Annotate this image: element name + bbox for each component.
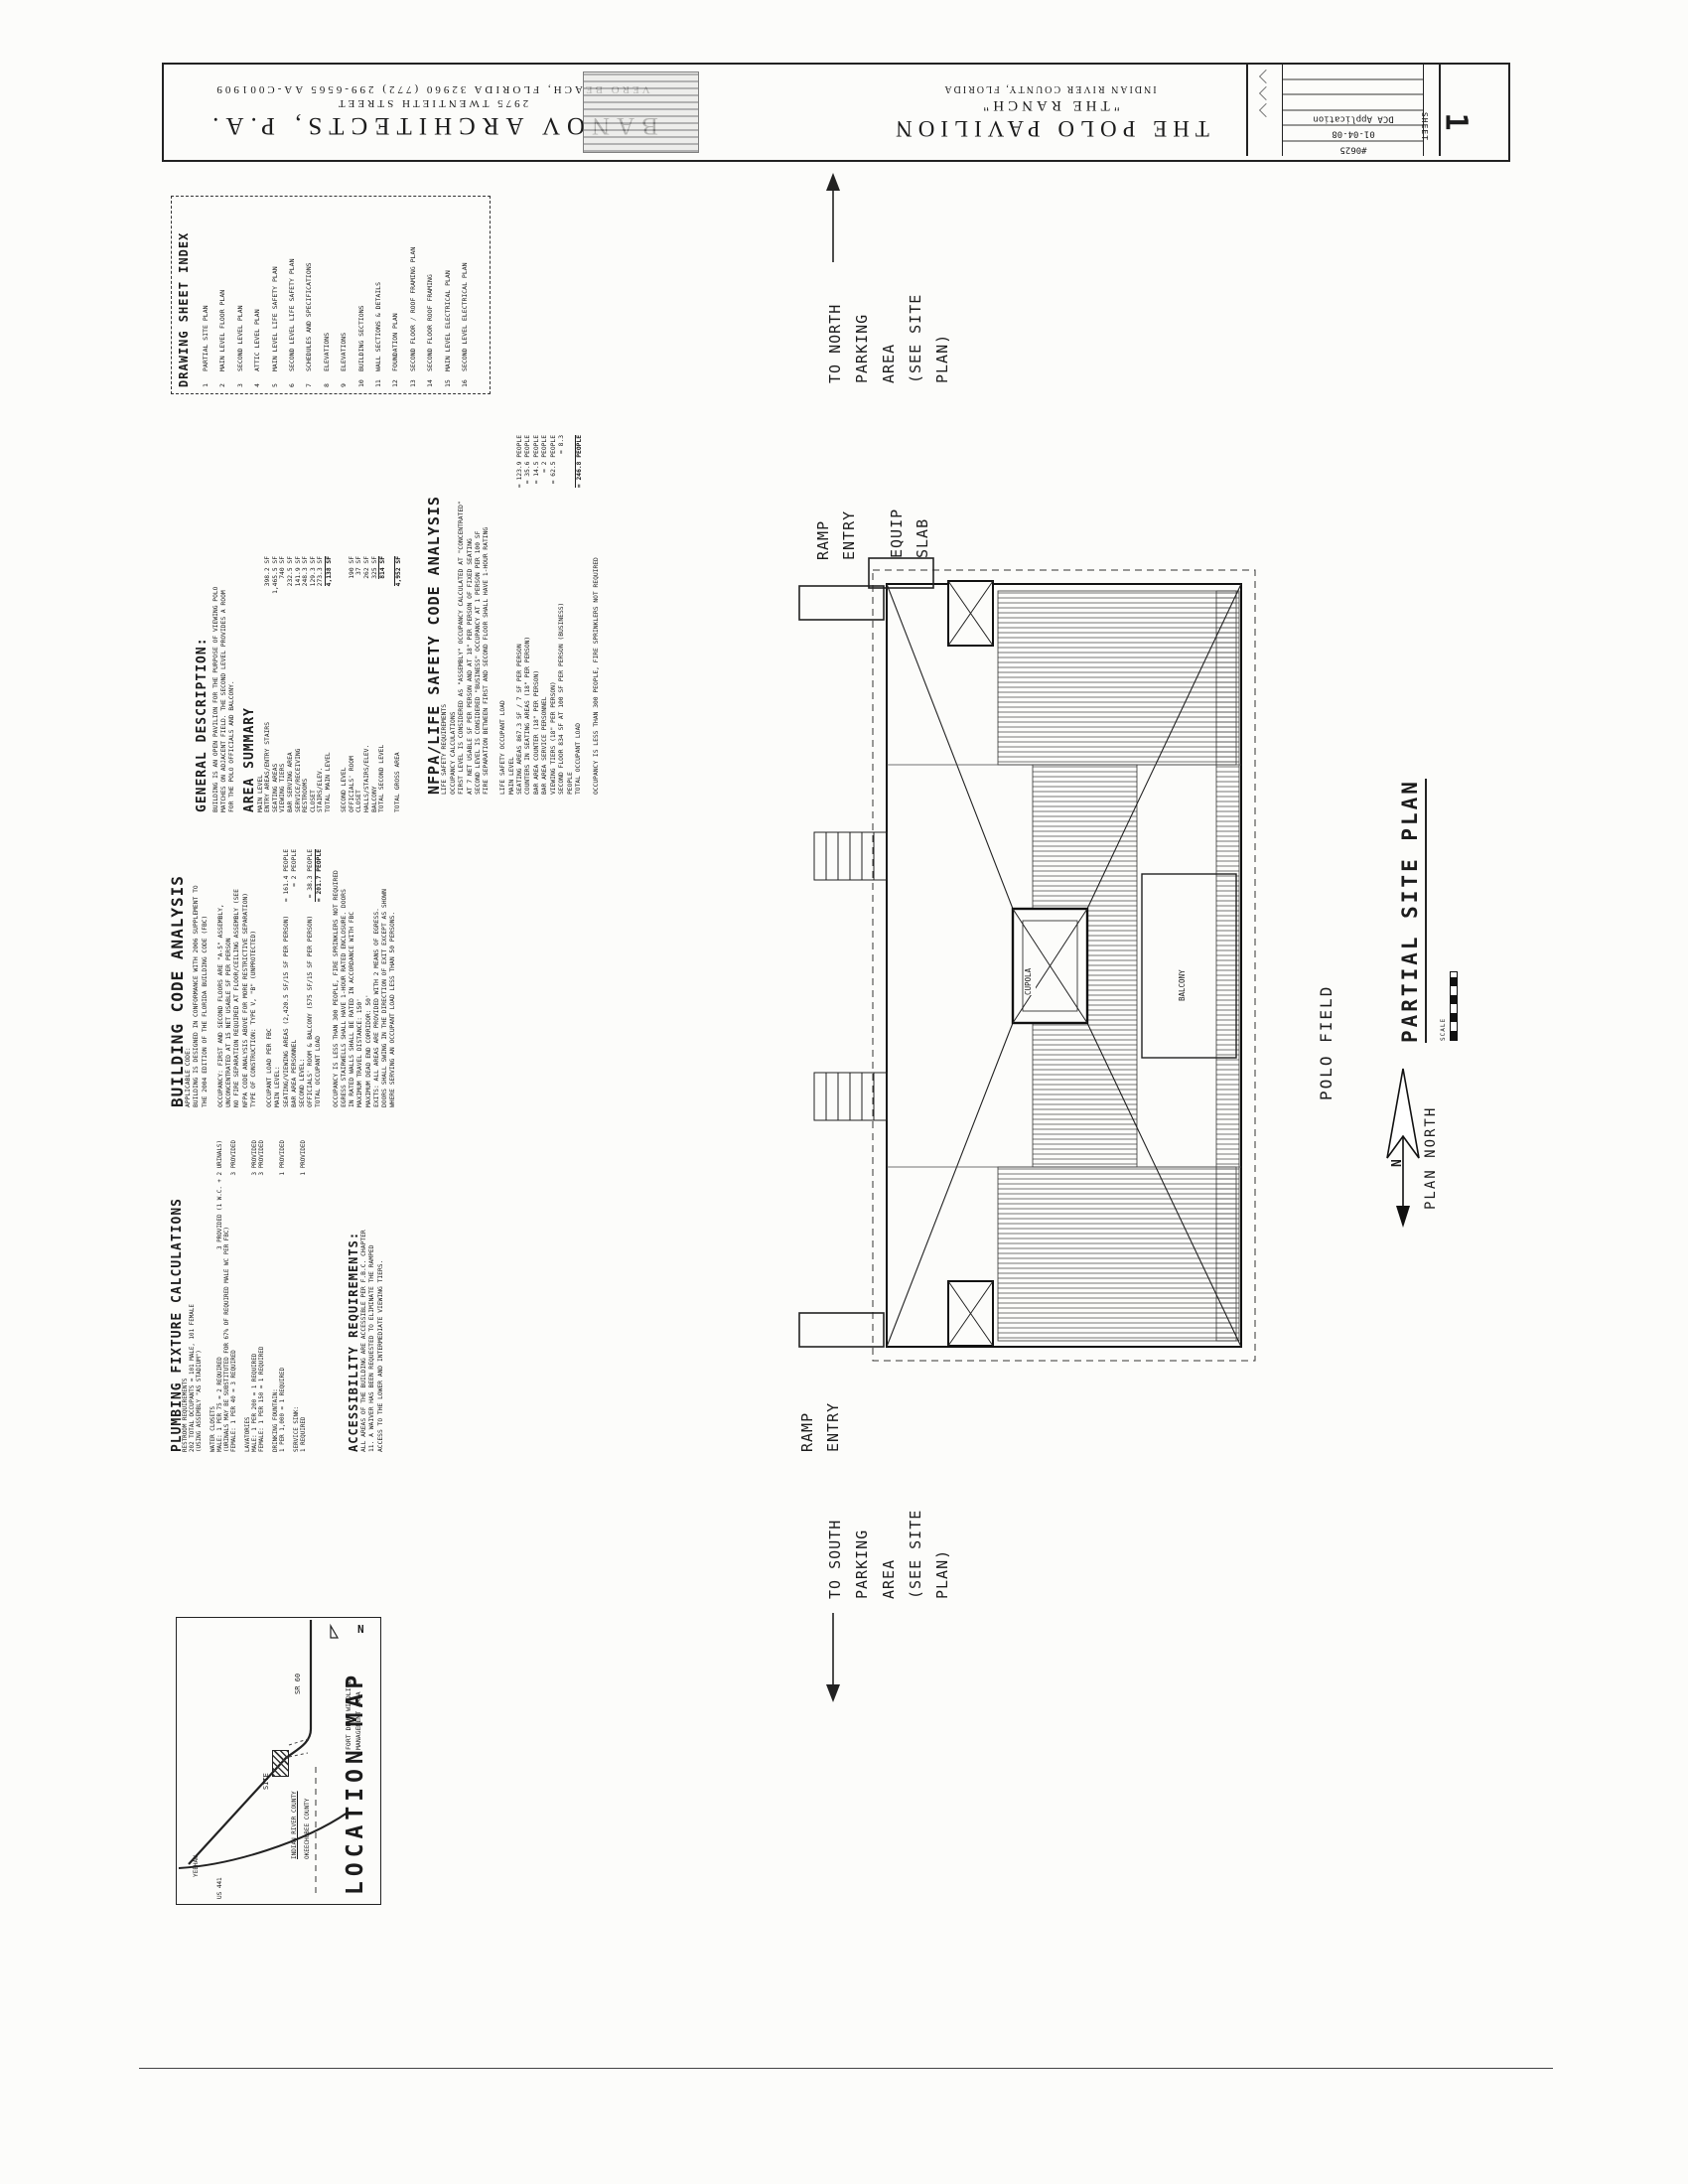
plumbing-title: PLUMBING FIXTURE CALCULATIONS <box>174 1140 181 1452</box>
plumbing-row: (USING ASSEMBLY "AS STADIUM") <box>197 1140 204 1452</box>
nfpa-load-row: COUNTERS IN SEATING AREAS (18" PER PERSO… <box>524 435 532 795</box>
area-row: HALLS/STAIRS/ELEV.262 SF <box>363 556 371 812</box>
building-code-line: EXITS: ALL AREAS ARE PROVIDED WITH 2 MEA… <box>373 849 381 1107</box>
general-description: GENERAL DESCRIPTION: BUILDING IS AN OPEN… <box>195 544 246 812</box>
second-level-label: SECOND LEVEL <box>341 556 349 812</box>
building-code-line: DOORS SHALL SWING IN THE DIRECTION OF EX… <box>381 849 389 1107</box>
area-row: OFFICIALS' ROOM190 SF <box>349 556 356 812</box>
accessibility-line: ALL AREAS OF THE BUILDING ARE ACCESSIBLE… <box>360 1140 368 1452</box>
sheet-index-entry: 8 ELEVATIONS <box>319 201 336 387</box>
map-label-us441: US 441 <box>216 1857 226 1899</box>
location-map-title: LOCATION MAP <box>343 1625 376 1895</box>
map-label-site: SITE <box>262 1760 272 1790</box>
area-row: BAR SERVING AREA232.5 SF <box>287 556 295 812</box>
area-summary-title: AREA SUMMARY <box>246 556 254 812</box>
building-code-line: MAXIMUM DEAD END CORRIDOR: 50' <box>365 849 373 1107</box>
ramp-entry-label-north: RAMPENTRY <box>810 491 866 560</box>
sheet-index-entry: 16 SECOND LEVEL ELECTRICAL PLAN <box>457 201 474 387</box>
plumbing-row: WATER CLOSETS <box>211 1140 217 1452</box>
plumbing-row: MALE: 1 PER 200 = 1 REQUIRED3 PROVIDED <box>252 1140 259 1452</box>
nfpa-load-row: SEATING AREAS 867.3 SF / 7 SF PER PERSON… <box>516 435 524 795</box>
main-level-label: MAIN LEVEL <box>257 556 265 812</box>
plumbing-row: (URINALS MAY BE SUBSTITUTED FOR 67% OF R… <box>224 1140 231 1452</box>
map-north-arrow-icon <box>331 1626 338 1638</box>
building-code-load-row: SECOND LEVEL: <box>299 849 307 1107</box>
sheet-index-entry: 9 ELEVATIONS <box>336 201 352 387</box>
building-code-line <box>325 849 333 1107</box>
accessibility-title: ACCESSIBILITY REQUIREMENTS: <box>350 1140 357 1452</box>
plumbing-row <box>287 1140 294 1452</box>
building-code-line: OCCUPANCY: FIRST AND SECOND FLOORS ARE "… <box>217 849 225 1107</box>
building-code-analysis: BUILDING CODE ANALYSIS APPLICABLE CODE:B… <box>174 849 417 1107</box>
sheet-index-list: 1 PARTIAL SITE PLAN 2 MAIN LEVEL FLOOR P… <box>198 201 475 387</box>
plumbing-calculations: PLUMBING FIXTURE CALCULATIONS RESTROOM R… <box>174 1140 300 1452</box>
building-code-load-row: SEATING/VIEWING AREAS (2,420.5 SF/15 SF … <box>283 849 291 1107</box>
nfpa-load-row: BAR AREA COUNTER (18" PER PERSON)= 14.5 … <box>533 435 541 795</box>
nfpa-note: OCCUPANCY IS LESS THAN 300 PEOPLE, FIRE … <box>593 435 601 795</box>
nfpa-line: OCCUPANCY CALCULATIONS <box>450 435 458 795</box>
sheet-number: 1 <box>1439 112 1474 130</box>
building-code-line: WHERE SERVING AN OCCUPANT LOAD LESS THAN… <box>389 849 397 1107</box>
plumbing-row: FEMALE: 1 PER 150 = 1 REQUIRED3 PROVIDED <box>259 1140 266 1452</box>
sheet-border-line <box>139 2068 1553 2069</box>
main-total-row: TOTAL MAIN LEVEL 4,138 SF <box>325 556 334 812</box>
building-code-total-row: TOTAL OCCUPANT LOAD = 201.7 PEOPLE <box>315 849 324 1107</box>
entry-stair-upper <box>814 832 887 880</box>
sheet-index-entry: 10 BUILDING SECTIONS <box>353 201 370 387</box>
gross-total-row: TOTAL GROSS AREA 4,952 SF <box>394 556 403 812</box>
revision-delta-icon <box>1259 103 1273 117</box>
building-code-line: EGRESS STAIRWELLS SHALL HAVE 1-HOUR RATE… <box>341 849 349 1107</box>
sheet-index: DRAWING SHEET INDEX 1 PARTIAL SITE PLAN … <box>177 201 485 387</box>
nfpa-total-row: TOTAL OCCUPANT LOAD = 246.8 PEOPLE <box>575 435 584 795</box>
sheet-index-entry: 12 FOUNDATION PLAN <box>387 201 404 387</box>
building-code-line: UNCONCENTRATED AT 15 NET USABLE SF PER P… <box>225 849 233 1107</box>
graphic-scale-bar <box>1450 971 1458 1041</box>
second-total-row: TOTAL SECOND LEVEL 814 SF <box>378 556 387 812</box>
partial-site-plan-title: PARTIAL SITE PLAN <box>1398 785 1434 1043</box>
sheet-index-entry: 6 SECOND LEVEL LIFE SAFETY PLAN <box>284 201 301 387</box>
accessibility-line: 11. A WAIVER HAS BEEN REQUESTED TO ELIMI… <box>368 1140 376 1452</box>
title-info-row <box>1283 65 1424 79</box>
sheet-index-entry: 2 MAIN LEVEL FLOOR PLAN <box>214 201 231 387</box>
plan-north-label: PLAN NORTH <box>1423 1078 1441 1210</box>
ramp-entry-label-south: RAMPENTRY <box>794 1379 852 1452</box>
polo-field-label: POLO FIELD <box>1317 979 1338 1100</box>
plumbing-row <box>238 1140 245 1452</box>
cupola-label: CUPOLA <box>1024 951 1036 995</box>
nfpa-line <box>492 435 499 795</box>
building-code-line: TYPE OF CONSTRUCTION: TYPE V, "B" (UNPRO… <box>250 849 258 1107</box>
sheet-index-entry: 14 SECOND FLOOR ROOF FRAMING <box>422 201 439 387</box>
title-info-row <box>1283 79 1424 95</box>
title-info-row: 01-04-08 <box>1283 125 1424 141</box>
building-code-line <box>210 849 217 1107</box>
area-row: STAIRS/ELEV.273.3 SF <box>317 556 325 812</box>
plumbing-row <box>266 1140 273 1452</box>
accessibility-requirements: ACCESSIBILITY REQUIREMENTS: ALL AREAS OF… <box>350 1140 415 1452</box>
revision-delta-icon <box>1259 86 1273 100</box>
shaft-upper <box>948 581 993 646</box>
ramp-south <box>799 1313 884 1347</box>
building-code-line: IN RATED WALLS SHALL BE RATED IN ACCORDA… <box>349 849 356 1107</box>
area-row: BALCONY325 SF <box>371 556 379 812</box>
area-row: SEATING AREAS1,465.5 SF <box>272 556 280 812</box>
nfpa-level-label: MAIN LEVEL <box>508 435 516 795</box>
sheet-index-entry: 1 PARTIAL SITE PLAN <box>198 201 214 387</box>
building-code-line: THE 2004 EDITION OF THE FLORIDA BUILDING… <box>202 849 210 1107</box>
building-code-line: OCCUPANCY IS LESS THAN 300 PEOPLE, FIRE … <box>333 849 341 1107</box>
title-info-table: DCA Application01-04-08#0625 <box>1282 65 1424 156</box>
area-row: CLOSET129.3 SF <box>310 556 318 812</box>
general-description-line: BUILDING IS AN OPEN PAVILION FOR THE PUR… <box>212 544 220 812</box>
building-code-load-row: MAIN LEVEL: <box>274 849 282 1107</box>
entry-stair-lower <box>814 1073 887 1120</box>
nfpa-load-title: LIFE SAFETY OCCUPANT LOAD <box>499 435 507 795</box>
area-row: ENTRY AREAS/ENTRY STAIRS398.2 SF <box>264 556 272 812</box>
map-label-county-bottom: OKEECHOBEE COUNTY <box>304 1778 315 1859</box>
sheet-index-entry: 11 WALL SECTIONS & DETAILS <box>370 201 387 387</box>
south-direction-arrow <box>820 1611 850 1704</box>
general-description-title: GENERAL DESCRIPTION: <box>195 544 210 812</box>
roof-hatch-upper <box>998 591 1236 765</box>
sheet-index-entry: 13 SECOND FLOOR / ROOF FRAMING PLAN <box>405 201 422 387</box>
sheet-index-entry: 3 SECOND LEVEL PLAN <box>232 201 249 387</box>
area-row: VIEWING TIERS740 SF <box>279 556 287 812</box>
area-row: RESTROOMS248.3 SF <box>302 556 310 812</box>
sheet-number-box: 1 <box>1439 65 1506 156</box>
sheet-index-entry: 15 MAIN LEVEL ELECTRICAL PLAN <box>440 201 457 387</box>
nfpa-load-row: PEOPLE <box>567 435 575 795</box>
area-row: SERVICE/RECEIVING141.9 SF <box>295 556 303 812</box>
roof-hatch-lower <box>998 1167 1236 1341</box>
project-section: THE POLO PAVILION "THE RANCH" INDIAN RIV… <box>856 69 1243 156</box>
sheet-label-cell: SHEET <box>1423 65 1440 156</box>
nfpa-load-row: BAR AREA SERVICE PERSONNEL= 2 PEOPLE <box>541 435 549 795</box>
scale-label: SCALE <box>1440 963 1447 1041</box>
building-code-line: NFPA CODE ANALYSIS ABOVE FOR MORE RESTRI… <box>242 849 250 1107</box>
building-code-title: BUILDING CODE ANALYSIS <box>174 849 182 1107</box>
building-code-load-row: OFFICIALS' ROOM & BALCONY (575 SF/15 SF … <box>307 849 315 1107</box>
revision-strip <box>1246 65 1284 156</box>
ramp-north <box>799 586 884 620</box>
building-code-line: MAXIMUM TRAVEL DISTANCE: 150' <box>356 849 364 1107</box>
nfpa-line: FIRE SEPARATION BETWEEN FIRST AND SECOND… <box>483 435 491 795</box>
nfpa-line: FIRST LEVEL IS CONSIDERED AS "ASSEMBLY" … <box>458 435 466 795</box>
nfpa-line: SECOND LEVEL IS CONSIDERED "BUSINESS" OC… <box>475 435 483 795</box>
general-description-line: FOR THE POLO OFFICIALS AND BALCONY. <box>228 544 236 812</box>
plumbing-row: 202 TOTAL OCCUPANTS = 101 MALE, 101 FEMA… <box>190 1140 197 1452</box>
map-label-yeehaw: YEEHAW <box>193 1835 203 1877</box>
map-road-turnpike <box>179 1813 348 1868</box>
north-direction-arrow <box>820 171 850 264</box>
to-south-parking-label: TO SOUTHPARKINGAREA(SEE SITEPLAN) <box>822 1460 961 1599</box>
building-code-line: NO FIRE SEPARATION REQUIRED AT FLOOR/CEI… <box>233 849 241 1107</box>
to-north-parking-label: TO NORTHPARKINGAREA(SEE SITEPLAN) <box>822 264 961 383</box>
nfpa-load-row: VIEWING TIERS (18" PER PERSON)= 62.5 PEO… <box>550 435 558 795</box>
revision-delta-icon <box>1259 70 1273 83</box>
area-summary: AREA SUMMARY MAIN LEVEL ENTRY AREAS/ENTR… <box>246 556 429 812</box>
plumbing-row: LAVATORIES <box>245 1140 252 1452</box>
building-code-load-row: OCCUPANT LOAD PER FBC <box>266 849 274 1107</box>
plumbing-row: MALE: 1 PER 75 = 2 REQUIRED3 PROVIDED (1… <box>217 1140 224 1452</box>
project-subtitle: "THE RANCH" <box>979 96 1120 113</box>
nfpa-analysis: NFPA/LIFE SAFETY CODE ANALYSIS LIFE SAFE… <box>430 435 624 795</box>
sheet-label: SHEET <box>1420 112 1429 141</box>
plumbing-row: 1 REQUIRED1 PROVIDED <box>301 1140 308 1452</box>
architect-seal-stamp <box>583 72 699 153</box>
plumbing-row: FEMALE: 1 PER 40 = 3 REQUIRED3 PROVIDED <box>231 1140 238 1452</box>
compass-north-letter: N <box>1390 1151 1406 1167</box>
building-code-line <box>258 849 266 1107</box>
map-site-marker <box>272 1750 289 1777</box>
map-label-sr60: SR 60 <box>294 1655 304 1694</box>
sheet-index-entry: 4 ATTIC LEVEL PLAN <box>249 201 266 387</box>
nfpa-line: AT 7 NET USABLE SF PER PERSON AND AT 18"… <box>467 435 475 795</box>
drawing-sheet: BANOV ARCHITECTS, P.A. 2975 TWENTIETH ST… <box>0 0 1688 2184</box>
scale-block: SCALE <box>1440 963 1468 1041</box>
title-block: BANOV ARCHITECTS, P.A. 2975 TWENTIETH ST… <box>162 63 1510 162</box>
equip-slab-label: EQUIPSLAB <box>884 485 941 558</box>
plumbing-row: 1 PER 1,000 = 1 REQUIRED1 PROVIDED <box>280 1140 287 1452</box>
title-info-row <box>1283 94 1424 110</box>
building-code-line: BUILDING IS DESIGNED IN CONFORMANCE WITH… <box>193 849 201 1107</box>
project-location: INDIAN RIVER COUNTY, FLORIDA <box>942 83 1156 94</box>
plumbing-row: SERVICE SINK: <box>294 1140 301 1452</box>
title-info-row: #0625 <box>1283 141 1424 157</box>
nfpa-title: NFPA/LIFE SAFETY CODE ANALYSIS <box>430 435 438 795</box>
project-name: THE POLO PAVILION <box>890 115 1209 141</box>
architect-address: 2975 TWENTIETH STREET <box>336 97 528 109</box>
balcony-label: BALCONY <box>1178 930 1191 1001</box>
sheet-index-title: DRAWING SHEET INDEX <box>177 201 191 387</box>
map-label-county-top: INDIAN RIVER COUNTY <box>291 1778 302 1859</box>
general-description-line: MATCHES ON ADJACENT FIELD. THE SECOND LE… <box>220 544 228 812</box>
area-row: CLOSET37 SF <box>355 556 363 812</box>
sheet-index-entry: 5 MAIN LEVEL LIFE SAFETY PLAN <box>267 201 284 387</box>
nfpa-load-row: SECOND FLOOR 834 SF AT 100 SF PER PERSON… <box>558 435 566 795</box>
plumbing-row <box>204 1140 211 1452</box>
title-info-row: DCA Application <box>1283 110 1424 126</box>
building-code-load-row: BAR AREA PERSONNEL= 2 PEOPLE <box>291 849 299 1107</box>
sheet-index-entry: 7 SCHEDULES AND SPECIFICATIONS <box>301 201 318 387</box>
accessibility-line: ACCESS TO THE LOWER AND INTERMEDIATE VIE… <box>377 1140 385 1452</box>
plumbing-row: DRINKING FOUNTAIN: <box>273 1140 280 1452</box>
shaft-lower <box>948 1281 993 1346</box>
